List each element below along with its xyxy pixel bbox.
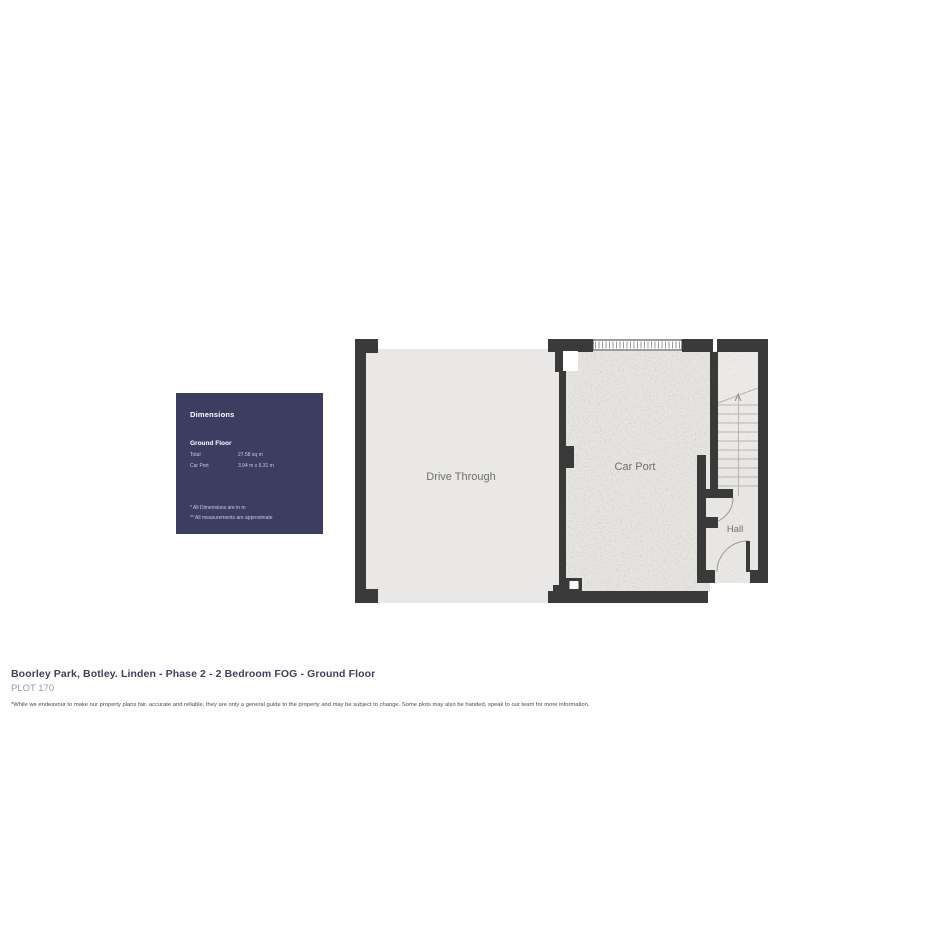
drive-through-room-label: Drive Through	[401, 471, 521, 483]
total-label: Total	[190, 452, 238, 458]
carport-label: Car Port	[190, 463, 238, 469]
dimension-footnotes: * All Dimensions are in m ** All measure…	[190, 503, 273, 523]
carport-left-wall	[559, 370, 566, 592]
plot-number: PLOT 170	[11, 683, 931, 694]
carport-top-wall-right	[682, 339, 713, 352]
footnote-2: ** All measurements are approximate	[190, 513, 273, 523]
carport-top-wall-left	[548, 339, 593, 352]
carport-left-door-jamb	[555, 351, 563, 372]
hall-top-wall	[706, 489, 733, 498]
car-port-room-label: Car Port	[585, 461, 685, 473]
dimensions-title: Dimensions	[190, 410, 311, 419]
hall-bottom-left-stub	[700, 570, 715, 583]
right-bottom-wall-stub	[750, 570, 768, 583]
right-wall	[758, 339, 768, 583]
caption-block: Boorley Park, Botley. Linden - Phase 2 -…	[11, 668, 931, 708]
stair-left-wall	[710, 352, 718, 493]
left-wall	[355, 339, 366, 603]
front-door-leaf	[746, 541, 750, 572]
dimension-row-total: Total 27.58 sq m	[190, 452, 311, 458]
carport-wall-pier	[559, 446, 574, 468]
disclaimer-text: *While we endeavour to make our property…	[11, 702, 931, 708]
post-symbol	[570, 581, 579, 589]
dimension-row-carport: Car Port 3.94 m x 6.31 m	[190, 463, 311, 469]
dimensions-panel: Dimensions Ground Floor Total 27.58 sq m…	[176, 393, 323, 534]
top-left-wall-stub	[355, 339, 378, 353]
footnote-1: * All Dimensions are in m	[190, 503, 273, 513]
hall-room-label: Hall	[705, 524, 765, 535]
floor-plan: Drive Through Car Port Hall	[355, 339, 768, 603]
bottom-left-wall-stub	[355, 589, 378, 603]
hall-left-wall	[697, 455, 706, 583]
total-value: 27.58 sq m	[238, 452, 263, 458]
page: Dimensions Ground Floor Total 27.58 sq m…	[0, 0, 945, 945]
ground-floor-heading: Ground Floor	[190, 440, 311, 447]
carport-value: 3.94 m x 6.31 m	[238, 463, 274, 469]
carport-door-opening	[563, 351, 578, 371]
carport-bottom-wall	[548, 591, 708, 603]
page-title: Boorley Park, Botley. Linden - Phase 2 -…	[11, 668, 931, 680]
